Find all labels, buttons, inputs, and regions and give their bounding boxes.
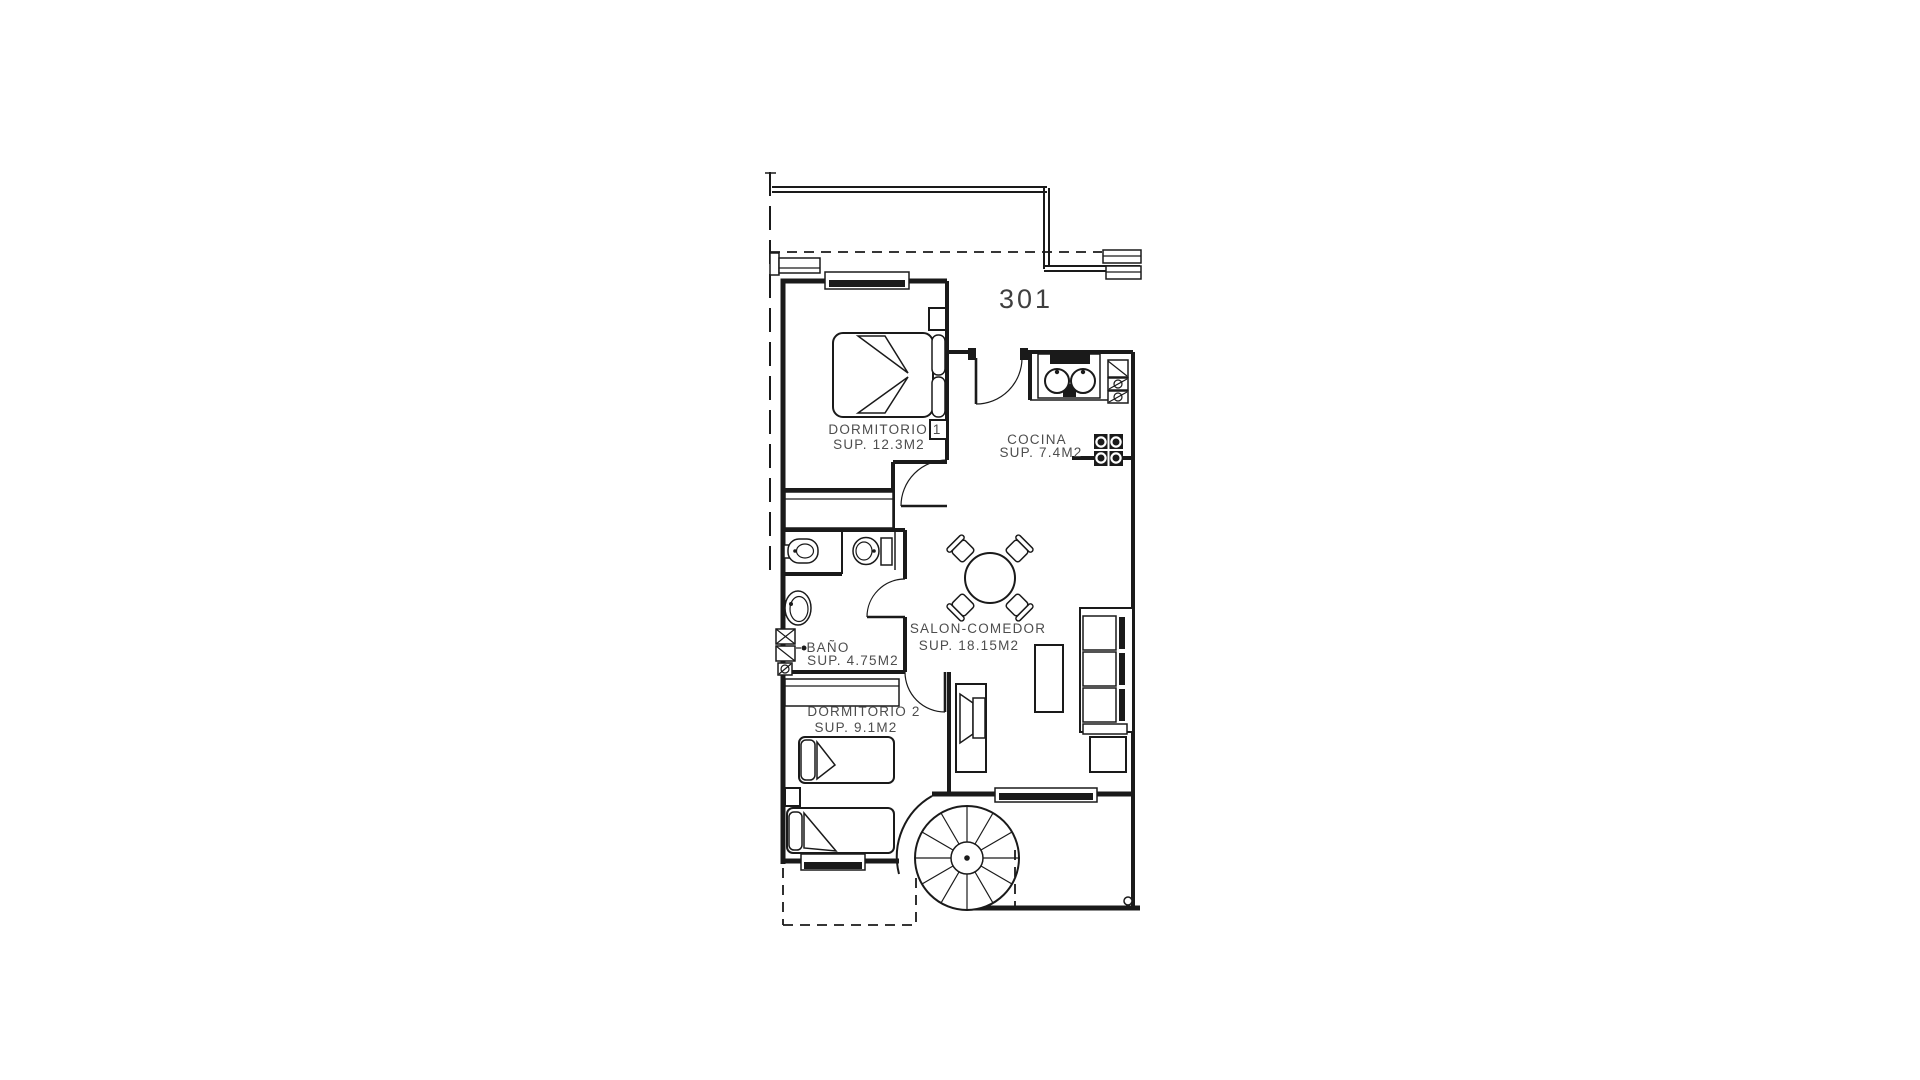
single-bed [787,808,894,853]
appliance-hob [1108,378,1128,390]
window-dormitorio2 [801,854,865,870]
bath-symbol-dot [796,646,807,651]
shaft-hatch [776,629,795,675]
window-dormitorio1 [825,272,909,289]
pillow [789,812,802,850]
stove [1094,434,1123,466]
corner-cabinet [1108,360,1128,377]
side-table [1090,737,1126,772]
bathroom-door [867,579,905,617]
room-area-dormitorio1: SUP. 12.3M2 [833,437,925,452]
floor-plan-page: 301 DORMITORIO 1 SUP. 12.3M2 COCINA SUP.… [0,0,1920,1080]
pillow [932,335,945,375]
unit-number-label: 301 [999,284,1053,314]
coffee-table [1035,645,1063,712]
tv-unit [956,684,986,772]
floor-plan-drawing: 301 DORMITORIO 1 SUP. 12.3M2 COCINA SUP.… [0,0,1920,1080]
room-area-dormitorio2: SUP. 9.1M2 [814,720,897,735]
room-name-salon: SALON-COMEDOR [910,621,1046,636]
nightstand [929,308,946,330]
dormitorio1-door [901,460,947,506]
room-area-bano: SUP. 4.75M2 [807,653,899,668]
dining-table [965,553,1015,603]
washbasin [785,591,811,625]
corridor-window-left [770,253,820,275]
appliance-hob [1108,391,1128,403]
closet-dormitorio2 [785,679,899,706]
room-area-salon: SUP. 18.15M2 [919,638,1019,653]
salon-furniture [946,534,1133,772]
dormitorio1-furniture [785,308,947,528]
window-terrace [995,788,1097,802]
room-name-dormitorio2: DORMITORIO 2 [807,704,920,719]
pillow [932,377,945,417]
pillow [801,740,815,780]
spiral-staircase [915,806,1019,910]
sofa [1080,608,1133,734]
kitchen-sink [1038,354,1100,398]
closet-dormitorio1 [785,492,893,528]
entrance-door [968,348,1028,404]
patio-dashed-outline [783,868,916,925]
nightstand [785,788,800,806]
drain-circle [1124,897,1132,905]
room-area-cocina: SUP. 7.4M2 [999,445,1082,460]
room-name-dormitorio1: DORMITORIO 1 [828,422,941,437]
bidet [784,539,818,563]
tv-icon [960,694,973,743]
toilet [853,538,892,566]
corridor-window-right [1103,250,1141,279]
